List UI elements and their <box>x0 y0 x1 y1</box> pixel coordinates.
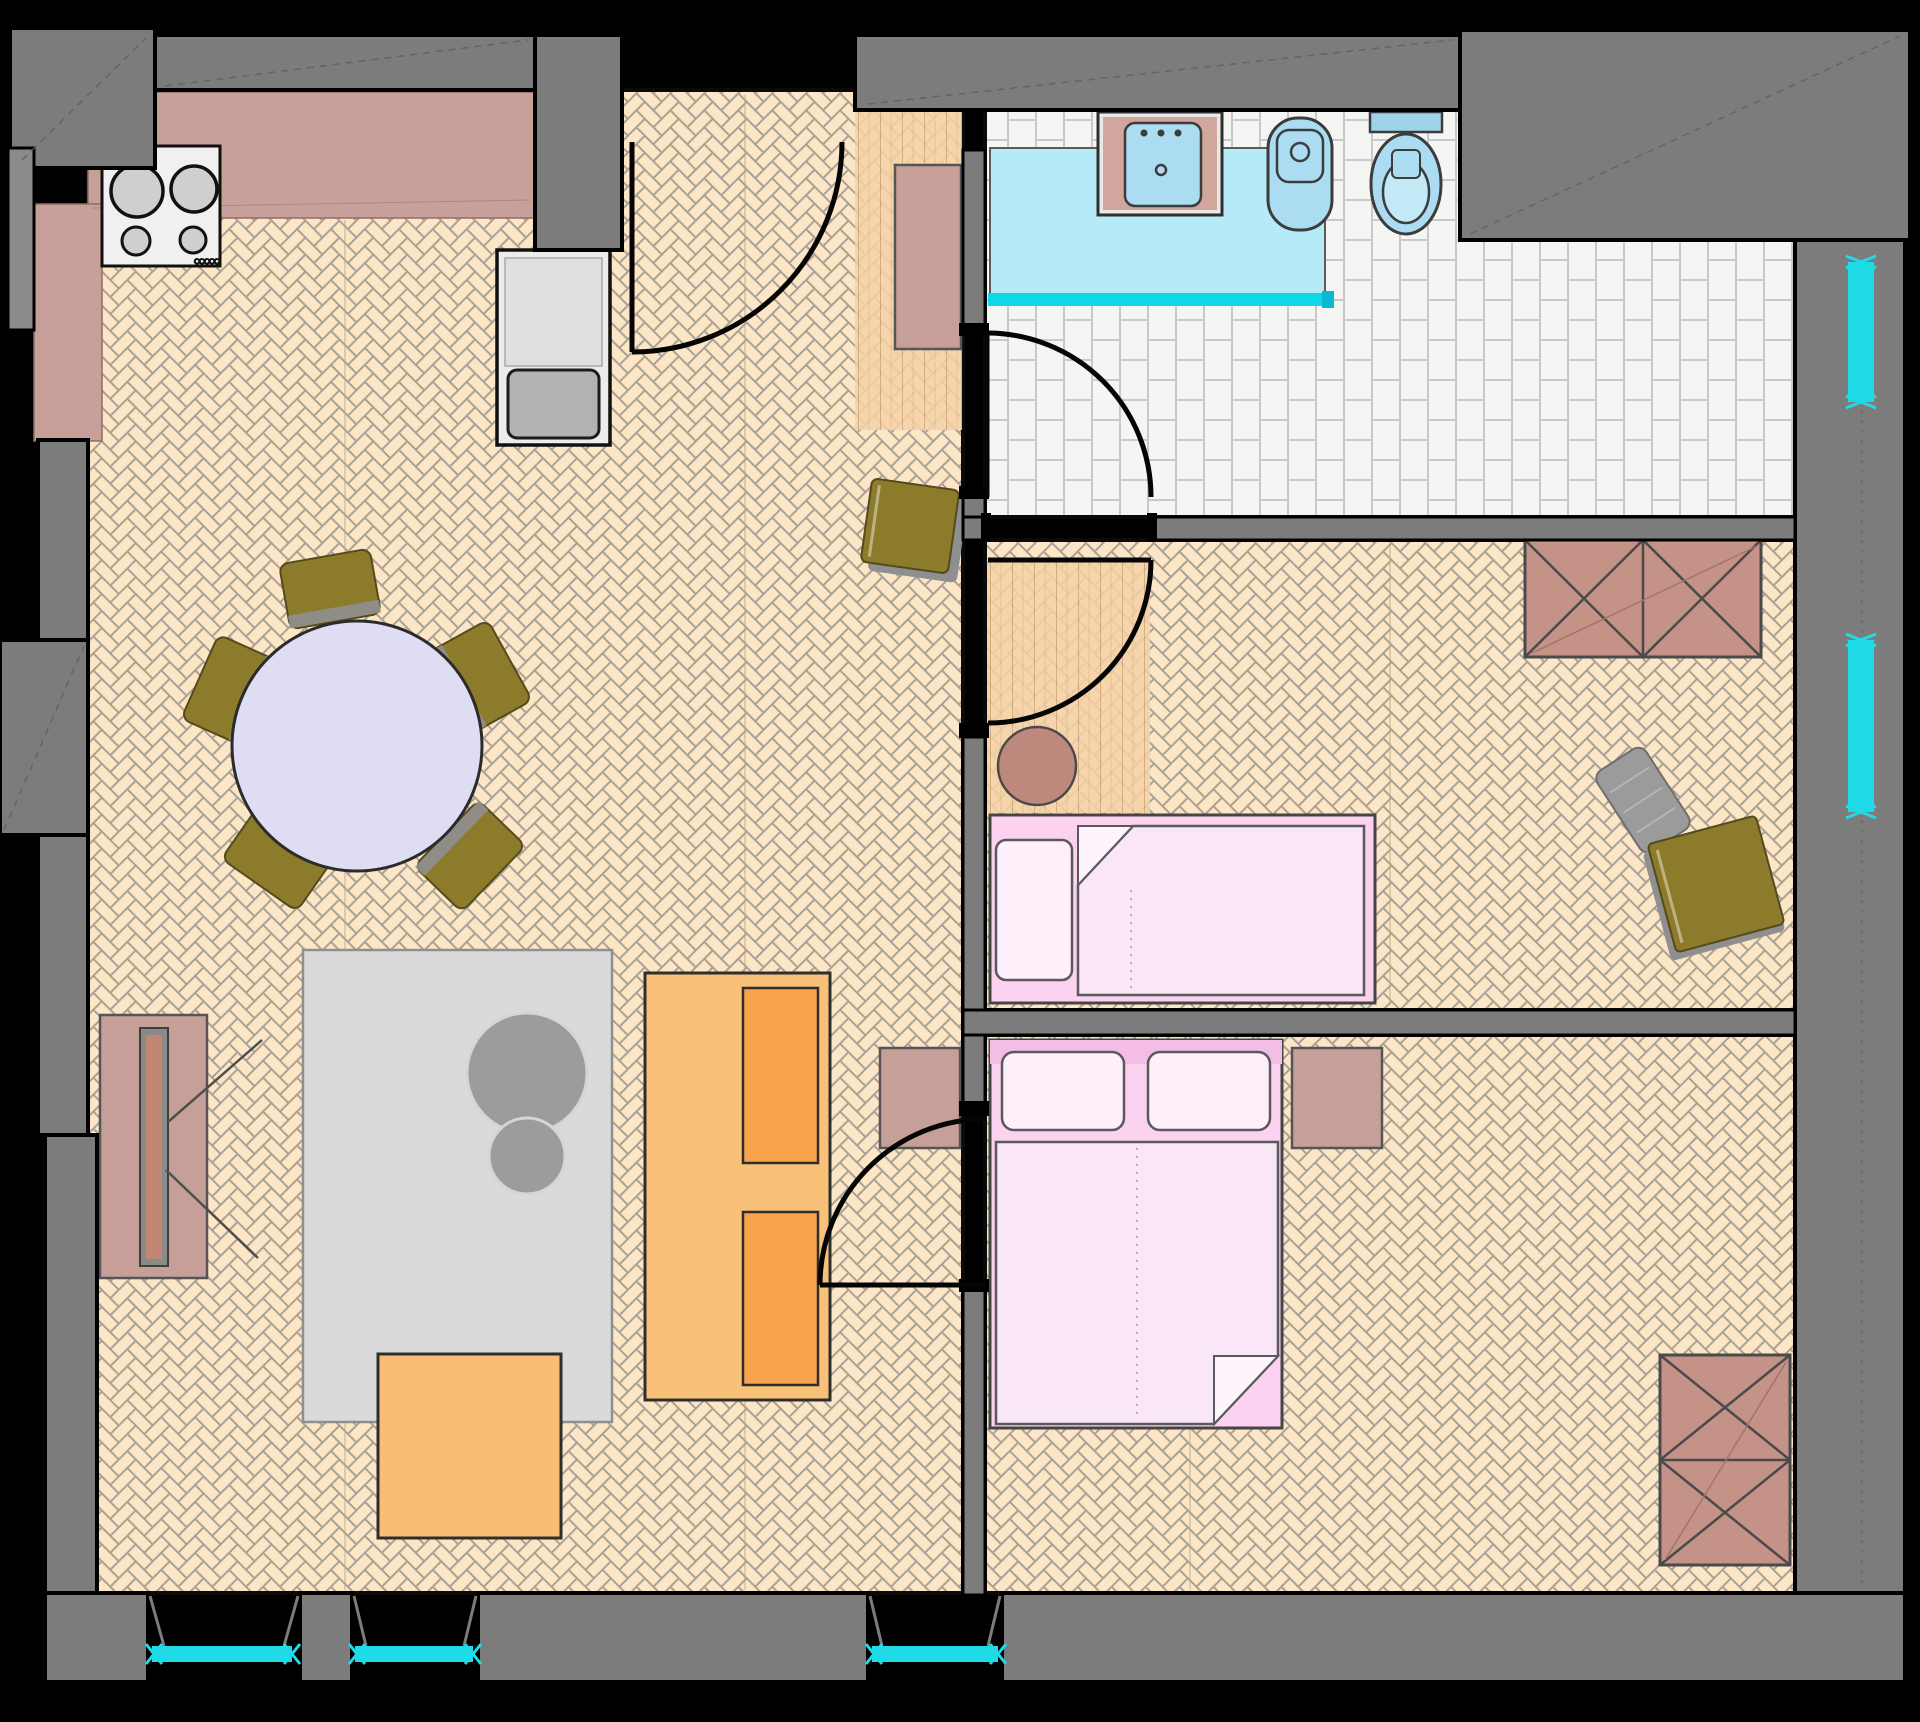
wall-mid-c <box>963 737 985 1012</box>
door-jamb <box>959 723 989 738</box>
toilet-lid <box>1392 150 1420 178</box>
bedside-pouf <box>998 727 1076 805</box>
bidet <box>1268 118 1332 230</box>
apartment-floor-plan <box>0 0 1920 1722</box>
rug <box>303 950 612 1422</box>
door-jamb <box>981 513 991 542</box>
wall-bottom-corner-left <box>45 1593 148 1682</box>
floor-plan-stage <box>0 0 1920 1722</box>
wall-right <box>1795 240 1905 1682</box>
wall-top-a <box>155 35 535 90</box>
door-jamb <box>1147 513 1157 542</box>
plan-root <box>0 28 1910 1682</box>
stove-burner-small-right <box>180 227 206 253</box>
faucet-hole <box>1175 130 1182 137</box>
faucet-hole <box>1141 130 1148 137</box>
window-glass-bottom-2 <box>355 1646 473 1662</box>
wall-left-block <box>0 640 88 835</box>
shower-glass-end <box>1322 291 1334 308</box>
rug-pouf-small <box>489 1118 565 1194</box>
sink-basin <box>508 370 599 438</box>
sofa-cushion <box>743 1212 818 1385</box>
rug-pouf-large <box>467 1013 587 1133</box>
bed-pillow <box>1148 1052 1270 1130</box>
ottoman <box>378 1354 561 1538</box>
stool-seat <box>861 478 960 573</box>
window-glass-right-1 <box>1848 262 1874 402</box>
nightstand <box>1292 1048 1382 1148</box>
double-bed <box>990 1040 1282 1428</box>
wall-divider-bedrooms <box>963 1010 1795 1035</box>
shower-glass-door <box>988 293 1332 306</box>
wardrobe-bottom-bedroom <box>1660 1355 1790 1565</box>
toilet-tank <box>1370 112 1442 132</box>
vanity <box>1098 112 1222 215</box>
wall-left-mid <box>38 835 88 1135</box>
wall-divider-bath-long <box>1155 517 1795 540</box>
bed-pillow <box>996 840 1072 980</box>
window-glass-bottom-1 <box>152 1646 292 1662</box>
wall-mid-e <box>963 1285 985 1595</box>
wall-bottom-pier-2 <box>478 1593 868 1682</box>
kitchen-counter-left <box>34 204 102 441</box>
wardrobe-middle-bedroom <box>1525 540 1761 657</box>
wall-left-window-sill <box>8 148 34 330</box>
faucet-hole <box>1158 130 1165 137</box>
single-bed <box>990 815 1375 1003</box>
bed-pillow <box>1002 1052 1124 1130</box>
toilet <box>1370 112 1442 234</box>
tv-screen <box>146 1035 162 1259</box>
wall-left-lower <box>45 1135 97 1598</box>
entry-closet <box>895 165 961 349</box>
wall-left-upper <box>38 440 88 640</box>
stove-burner-large-left <box>111 165 163 217</box>
kitchen-sink-unit <box>497 250 610 445</box>
hall-stool <box>859 478 969 583</box>
wall-bottom-pier-1 <box>300 1593 352 1682</box>
window-glass-bottom-3 <box>872 1646 998 1662</box>
wall-bottom-right <box>1002 1593 1905 1682</box>
wall-mid-a <box>963 150 985 333</box>
bed-duvet <box>1078 826 1364 995</box>
sofa-cushion <box>743 988 818 1163</box>
wall-pillar-entry <box>535 35 622 250</box>
door-jamb <box>959 1101 989 1116</box>
stove-burner-small-left <box>122 227 150 255</box>
sink-drainer <box>505 258 602 366</box>
dining-table <box>232 621 482 871</box>
window-glass-right-2 <box>1848 640 1874 812</box>
stove-burner-large-right <box>171 166 217 212</box>
